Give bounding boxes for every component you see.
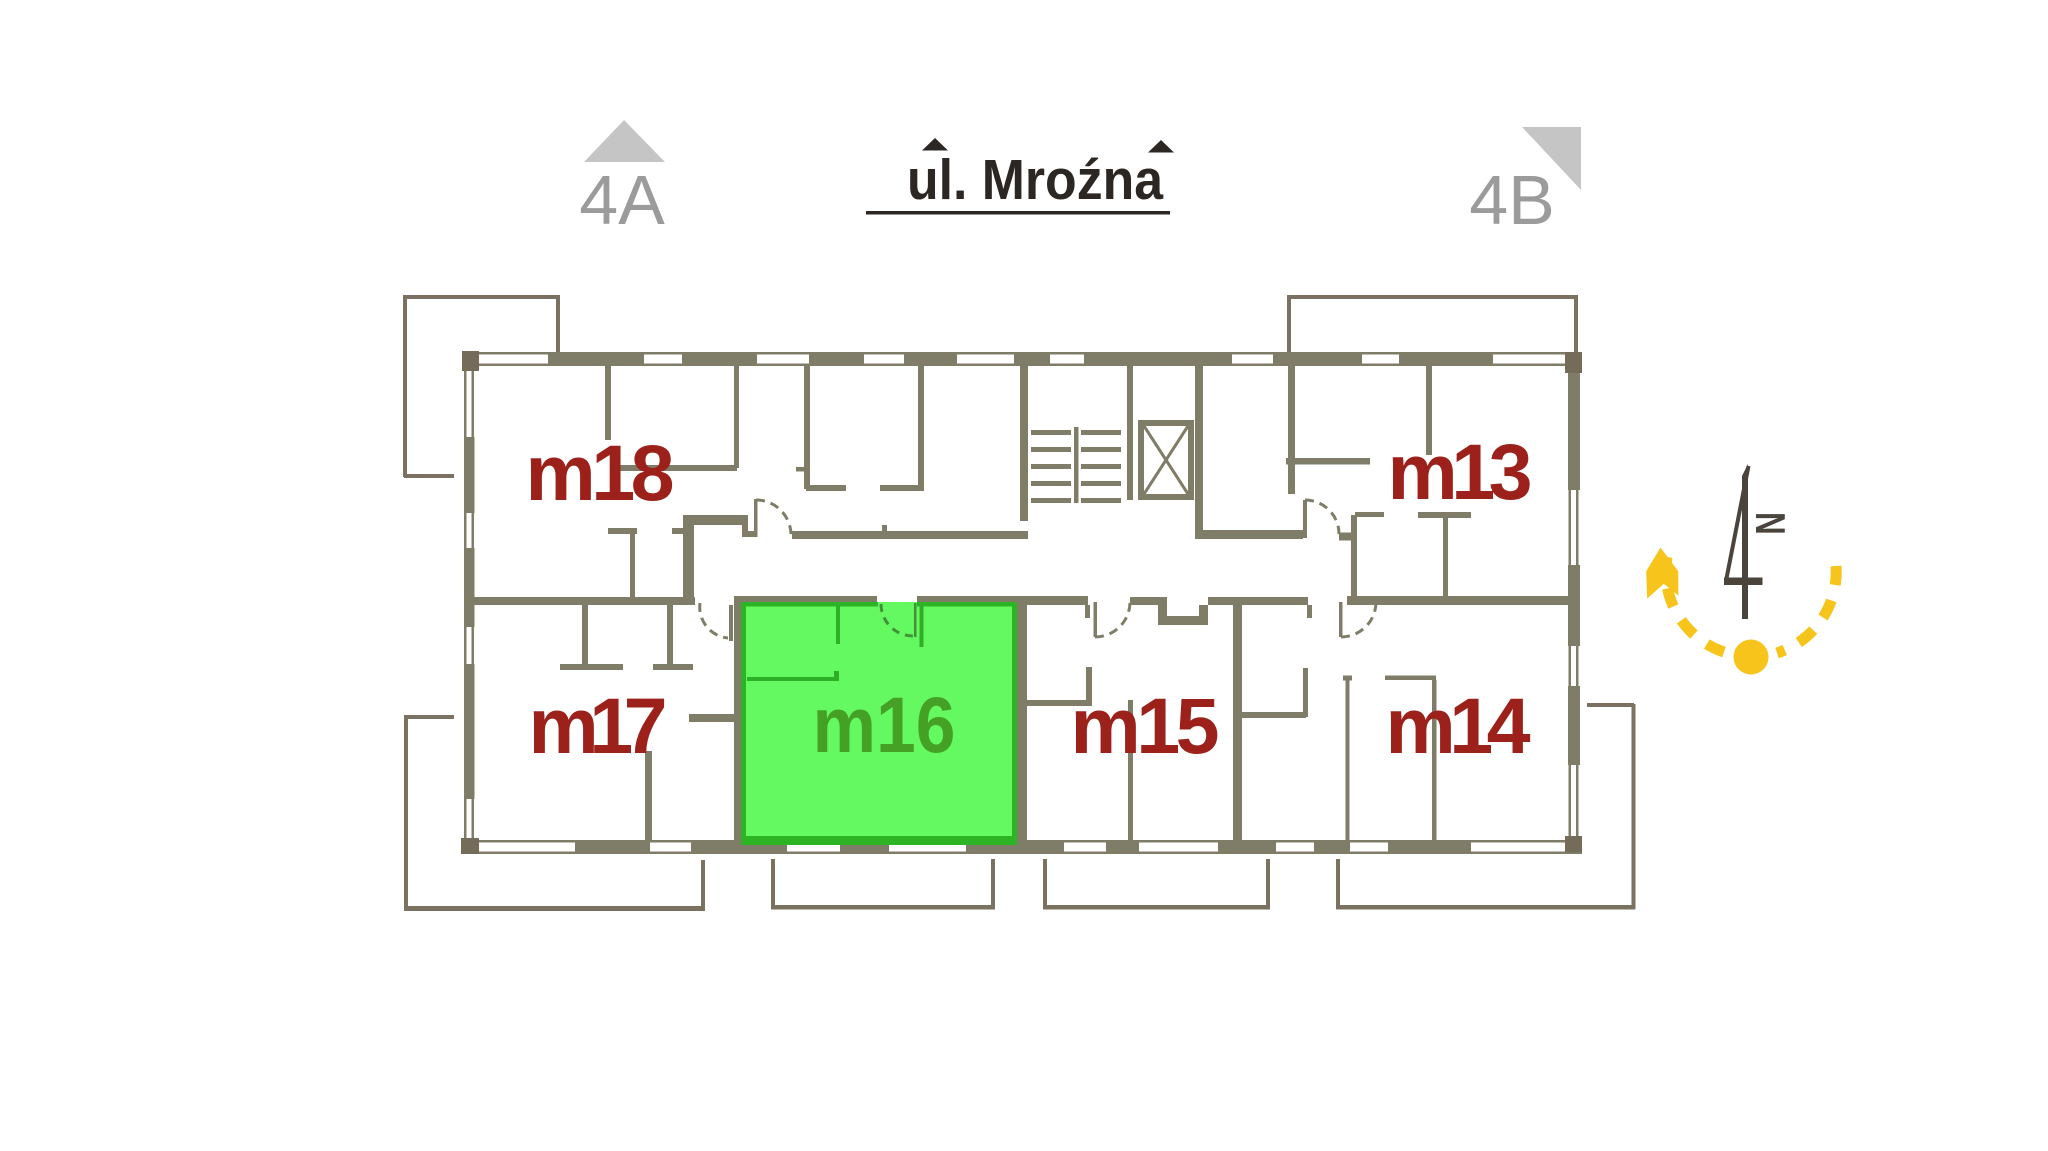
svg-text:m14: m14 bbox=[1386, 681, 1531, 770]
svg-text:m16: m16 bbox=[813, 680, 956, 769]
svg-text:ul. Mroźna: ul. Mroźna bbox=[907, 148, 1164, 212]
svg-text:4B: 4B bbox=[1469, 161, 1555, 239]
svg-text:m13: m13 bbox=[1388, 427, 1533, 516]
svg-text:m15: m15 bbox=[1071, 681, 1220, 770]
svg-text:N: N bbox=[1747, 512, 1795, 535]
svg-text:m17: m17 bbox=[529, 681, 668, 770]
svg-text:4A: 4A bbox=[579, 161, 665, 239]
svg-text:m18: m18 bbox=[526, 428, 675, 517]
